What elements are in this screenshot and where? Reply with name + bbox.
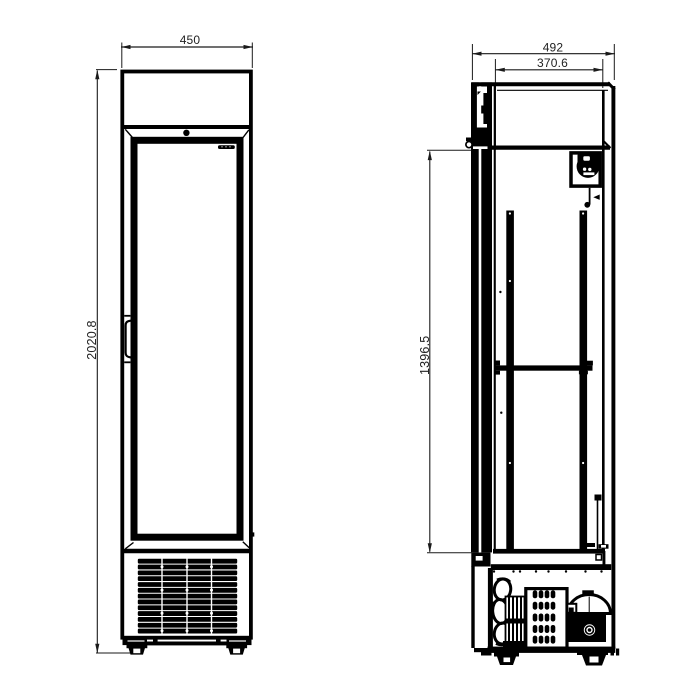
svg-text:492: 492 xyxy=(543,40,564,54)
svg-text:2020.8: 2020.8 xyxy=(85,320,99,359)
svg-text:450: 450 xyxy=(180,33,201,47)
svg-text:370.6: 370.6 xyxy=(537,56,568,70)
svg-text:1396.5: 1396.5 xyxy=(418,336,432,375)
